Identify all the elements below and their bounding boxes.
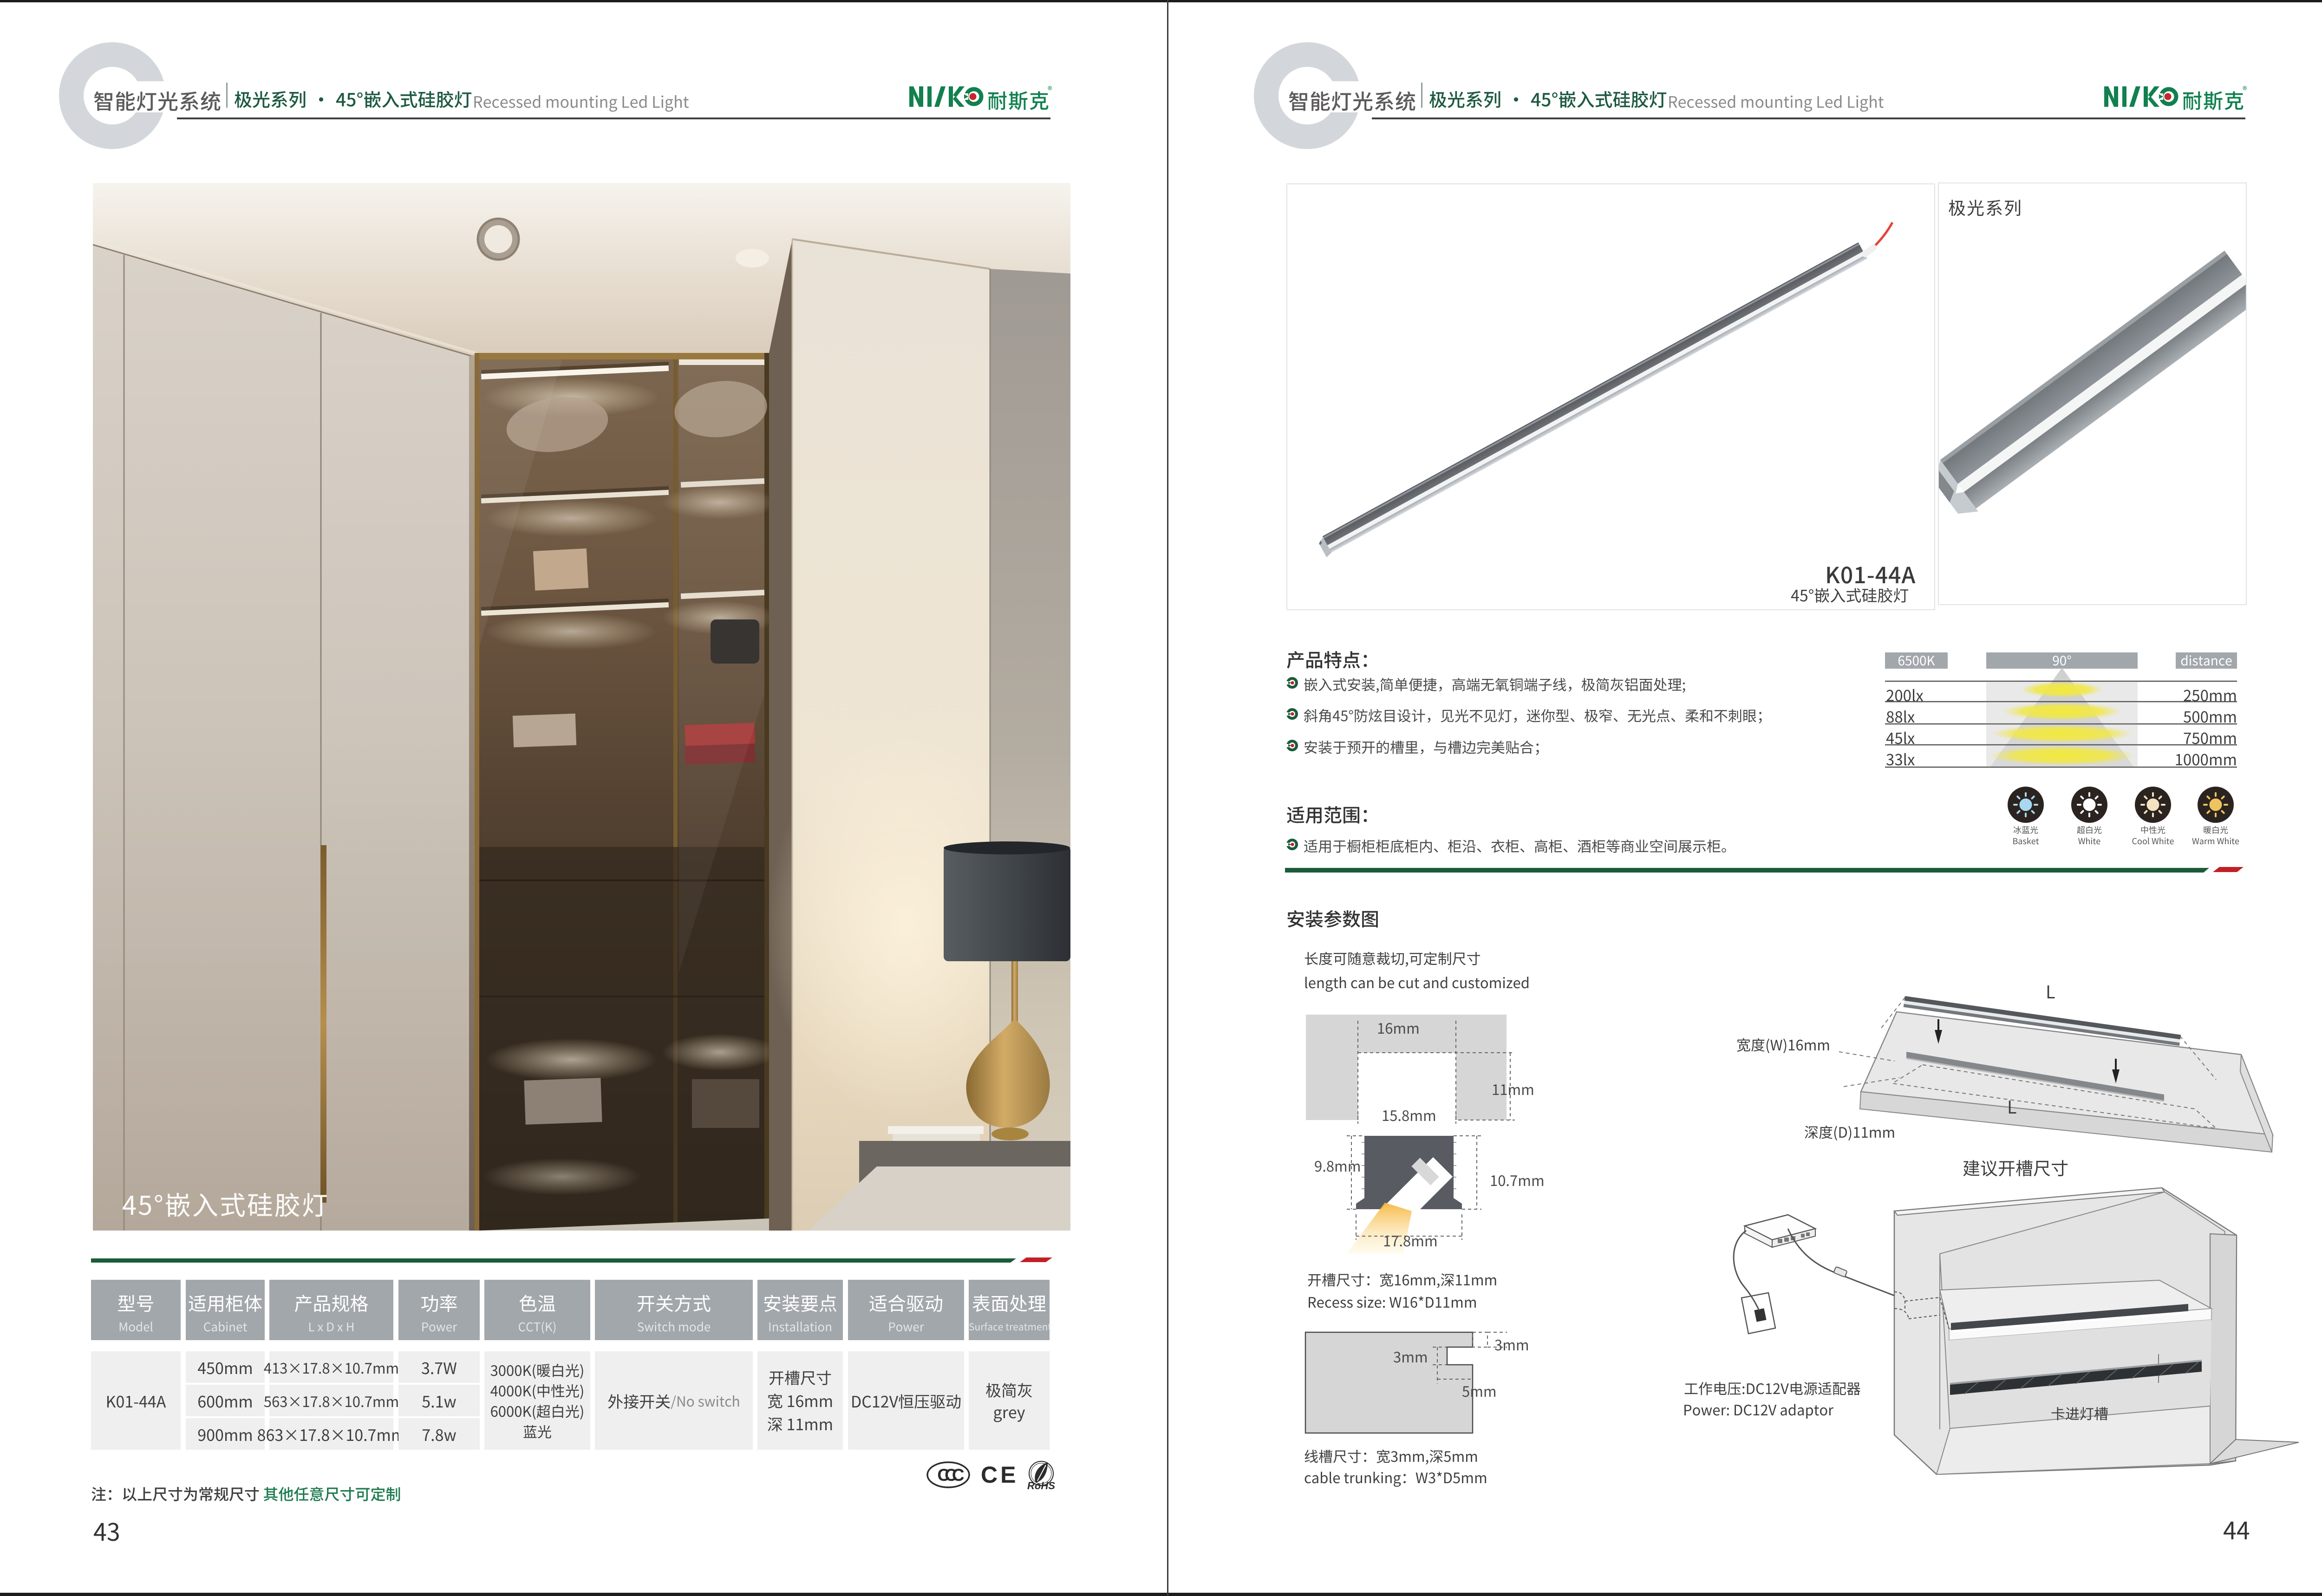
svg-text:CCC: CCC [937,1466,964,1485]
svg-text:CE: CE [981,1462,1018,1488]
svg-text:RoHS: RoHS [1027,1480,1055,1492]
